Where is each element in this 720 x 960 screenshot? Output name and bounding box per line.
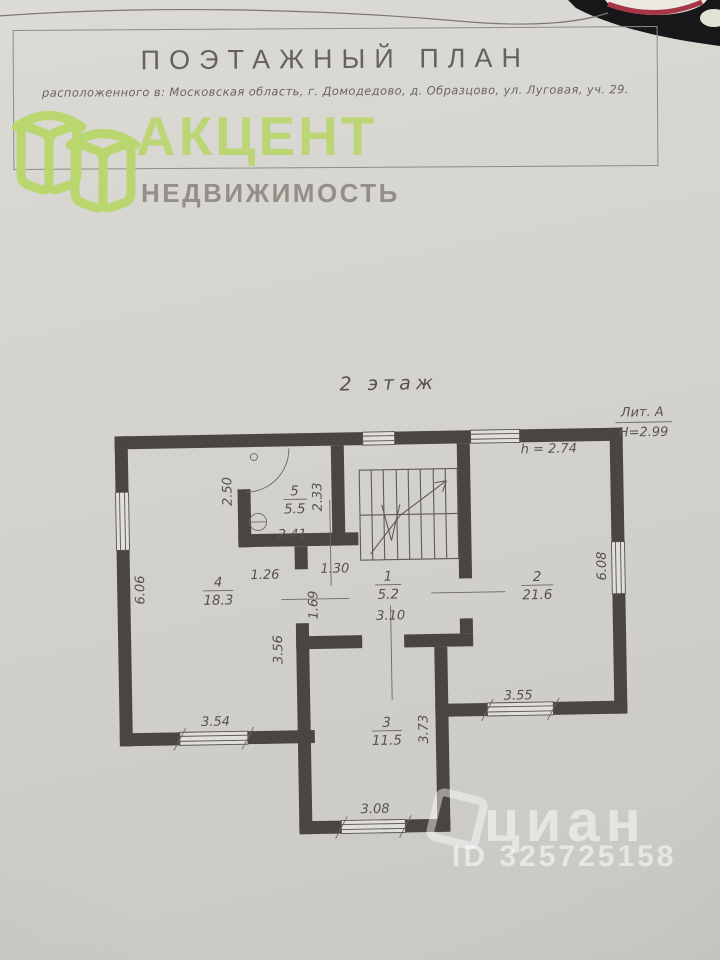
window-icon xyxy=(487,702,553,716)
window-icon xyxy=(470,429,519,443)
dimension-label: 2.50 xyxy=(220,477,236,506)
dimension-label: 1.30 xyxy=(320,561,349,577)
room-area: 5.5 xyxy=(284,501,306,517)
room-label-4: 4 18.3 xyxy=(203,574,234,609)
dimension-label: 2.33 xyxy=(310,482,326,511)
dimension-label: 3.56 xyxy=(271,635,287,664)
room-label-2: 2 21.6 xyxy=(521,569,554,604)
room-label-5: 5 5.5 xyxy=(283,483,307,517)
door-arc-icon xyxy=(246,448,290,492)
dimension-label: 3.10 xyxy=(376,608,405,624)
window-icon xyxy=(363,432,395,446)
room-area: 18.3 xyxy=(203,592,233,609)
dimension-label: 3.73 xyxy=(416,714,432,743)
room-number: 2 xyxy=(533,569,542,585)
window-icon xyxy=(116,492,130,550)
room-number: 5 xyxy=(290,483,299,499)
window-icon xyxy=(611,542,625,594)
document-photo: ПОЭТАЖНЫЙ ПЛАН расположенного в: Московс… xyxy=(0,0,720,960)
cian-listing-id: ID 325725158 xyxy=(452,840,677,874)
dimension-label: 1.69 xyxy=(306,590,322,619)
window-icon xyxy=(341,819,405,833)
room-area: 11.5 xyxy=(372,732,402,749)
room-number: 3 xyxy=(382,715,391,731)
window-icon xyxy=(180,731,248,745)
room-area: 21.6 xyxy=(522,587,552,604)
dimension-label: 6.08 xyxy=(595,551,611,580)
dimension-lines xyxy=(168,422,679,842)
sink-icon xyxy=(249,513,266,530)
staircase-icon xyxy=(359,468,459,560)
dimension-label: 3.54 xyxy=(201,714,230,730)
ceiling-height-label: h = 2.74 xyxy=(521,441,578,457)
room-label-3: 3 11.5 xyxy=(371,714,402,749)
litera-label: Лит. А xyxy=(620,405,664,421)
room-number: 4 xyxy=(214,575,223,591)
dimension-label: 6.06 xyxy=(133,575,149,604)
dimension-label: 3.08 xyxy=(360,802,389,818)
dimension-label: 2.41 xyxy=(278,527,307,543)
room-area: 5.2 xyxy=(377,587,399,603)
dimension-label: 3.55 xyxy=(504,688,533,704)
floor-label: 2 этаж xyxy=(339,372,438,396)
room-number: 1 xyxy=(384,569,393,585)
dimension-label: 1.26 xyxy=(250,568,279,584)
building-height-label: Н=2.99 xyxy=(619,425,669,441)
room-label-1: 1 5.2 xyxy=(375,568,402,602)
